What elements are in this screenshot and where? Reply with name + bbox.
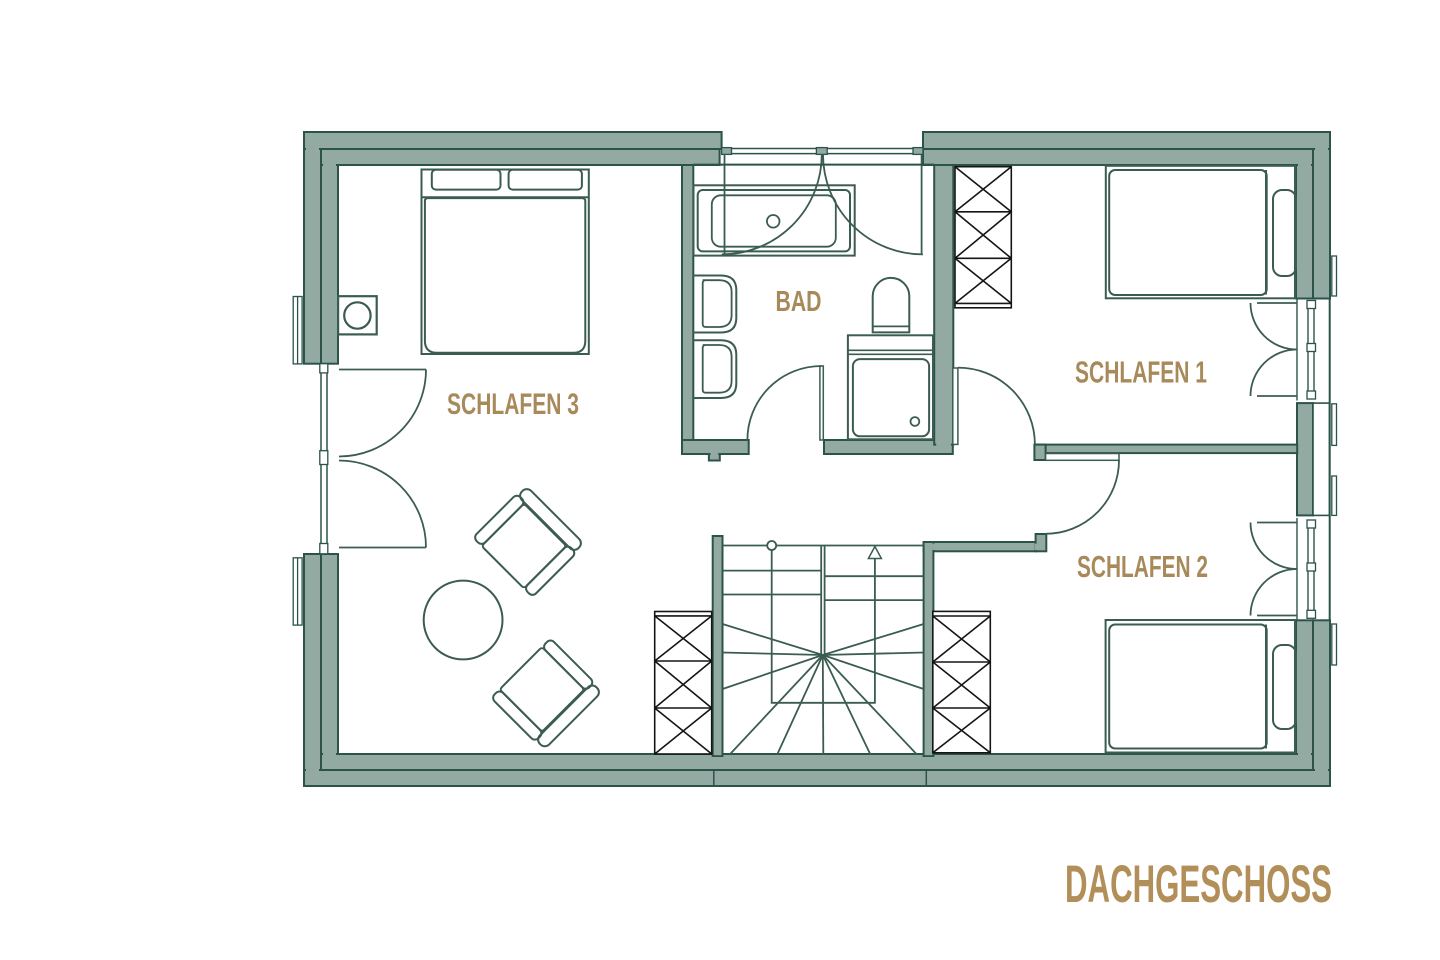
svg-text:DACHGESCHOSS: DACHGESCHOSS bbox=[1065, 855, 1332, 914]
svg-text:SCHLAFEN 3: SCHLAFEN 3 bbox=[447, 388, 579, 421]
svg-text:BAD: BAD bbox=[776, 286, 822, 318]
svg-text:SCHLAFEN 2: SCHLAFEN 2 bbox=[1077, 549, 1208, 584]
svg-text:SCHLAFEN 1: SCHLAFEN 1 bbox=[1075, 355, 1207, 390]
